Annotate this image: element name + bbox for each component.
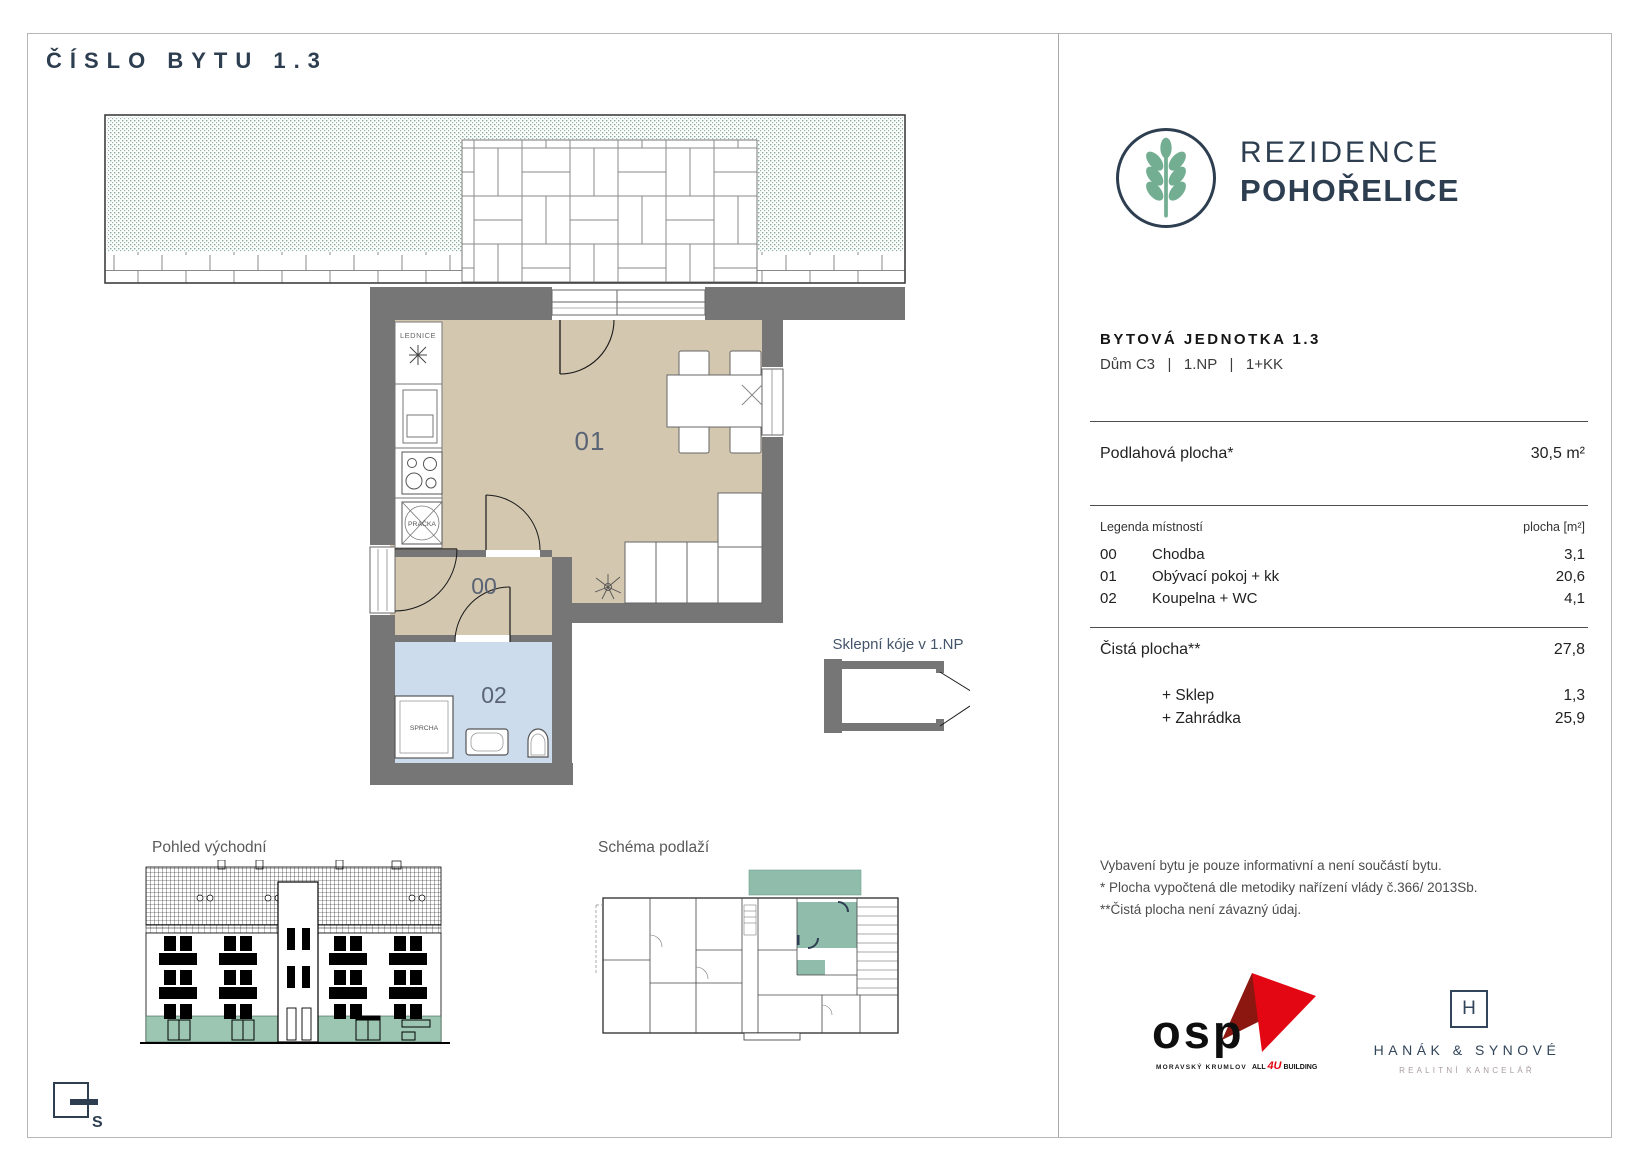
floor-area-value: 30,5 m² [1531, 445, 1585, 463]
extra-value: 25,9 [1555, 710, 1585, 728]
room-code: 00 [1100, 546, 1152, 563]
pane-divider [1058, 33, 1059, 1137]
cellar-box [824, 659, 970, 733]
osp-city: MORAVSKÝ KRUMLOV [1156, 1064, 1247, 1071]
extra-row: + Zahrádka 25,9 [1100, 710, 1585, 728]
page-title: ČÍSLO BYTU 1.3 [46, 48, 328, 74]
osp-tagline: ALL 4U BUILDING [1252, 1060, 1317, 1072]
osp-tag-all: ALL [1252, 1064, 1265, 1071]
shower-symbol: SPRCHA [395, 696, 453, 758]
brand-logo-circle [1116, 128, 1216, 228]
room-area: 4,1 [1564, 590, 1585, 607]
wheat-icon [1119, 131, 1213, 225]
hanak-logo: H HANÁK & SYNOVÉ REALITNÍ KANCELÁŘ [1372, 988, 1562, 1083]
legend-header-row: Legenda místností plocha [m²] [1100, 520, 1585, 534]
net-area-row: Čistá plocha** 27,8 [1100, 641, 1585, 659]
legend-title: Legenda místností [1100, 520, 1203, 534]
hanak-name: HANÁK & SYNOVÉ [1372, 1042, 1562, 1058]
schema-bottom-step [744, 1033, 800, 1040]
fridge-symbol [403, 390, 437, 443]
washer-label: PRAČKA [408, 519, 436, 528]
fridge-label: LEDNICE [400, 331, 436, 340]
room-name: Obývací pokoj + kk [1152, 568, 1556, 585]
net-area-value: 27,8 [1554, 641, 1585, 659]
shower-label: SPRCHA [410, 725, 439, 732]
stove-symbol [402, 452, 442, 494]
asterisk-icon [409, 345, 427, 365]
stair-tower [278, 882, 318, 1042]
osp-tag-building: BUILDING [1283, 1064, 1317, 1071]
schema-edge-mark [596, 905, 603, 975]
room-label-02: 02 [481, 682, 507, 708]
washer-symbol: PRAČKA [402, 502, 442, 544]
floor-area-label: Podlahová plocha* [1100, 445, 1233, 463]
extra-row: + Sklep 1,3 [1100, 687, 1585, 705]
room-area: 20,6 [1556, 568, 1585, 585]
table-row: 01 Obývací pokoj + kk 20,6 [1100, 568, 1585, 585]
osp-logo: osp MORAVSKÝ KRUMLOV ALL 4U BUILDING [1146, 962, 1336, 1080]
toilet-symbol [528, 729, 548, 757]
elevation-caption: Pohled východní [152, 839, 267, 857]
unit-heading: BYTOVÁ JEDNOTKA 1.3 [1100, 331, 1321, 348]
unit-subheading: Dům C3 | 1.NP | 1+KK [1100, 356, 1283, 373]
net-area-label: Čistá plocha** [1100, 641, 1201, 659]
extra-label: + Sklep [1100, 687, 1214, 705]
north-label: S [92, 1114, 103, 1131]
brand-line1: REZIDENCE [1240, 136, 1460, 170]
notes-block: Vybavení bytu je pouze informativní a ne… [1100, 855, 1477, 921]
elevation-drawing [138, 860, 453, 1050]
room-label-00: 00 [471, 573, 497, 599]
cellar-caption: Sklepní kóje v 1.NP [808, 636, 988, 653]
schema-terrace-highlight [749, 870, 861, 895]
room-name: Koupelna + WC [1152, 590, 1564, 607]
page: ČÍSLO BYTU 1.3 [0, 0, 1639, 1170]
sink-symbol [466, 729, 508, 755]
extra-value: 1,3 [1563, 687, 1585, 705]
north-indicator: S [50, 1075, 112, 1137]
room-code: 01 [1100, 568, 1152, 585]
hanak-subtitle: REALITNÍ KANCELÁŘ [1372, 1066, 1562, 1075]
table-row: 02 Koupelna + WC 4,1 [1100, 590, 1585, 607]
table-row: 00 Chodba 3,1 [1100, 546, 1585, 563]
osp-name: osp [1152, 1006, 1245, 1058]
room-name: Chodba [1152, 546, 1564, 563]
room-label-01: 01 [575, 426, 606, 456]
brand-name: REZIDENCE POHOŘELICE [1240, 136, 1460, 209]
legend-area-header: plocha [m²] [1523, 520, 1585, 534]
note-line: * Plocha vypočtená dle metodiky nařízení… [1100, 877, 1477, 899]
note-line: **Čistá plocha není závazný údaj. [1100, 899, 1477, 921]
rule-1 [1090, 421, 1588, 422]
rule-2 [1090, 505, 1588, 506]
room-area: 3,1 [1564, 546, 1585, 563]
note-line: Vybavení bytu je pouze informativní a ne… [1100, 855, 1477, 877]
rule-3 [1090, 627, 1588, 628]
osp-tag-4u: 4U [1267, 1060, 1281, 1072]
schema-drawing [592, 855, 907, 1050]
floorplan-drawing: LEDNICE PRAČKA [90, 100, 970, 800]
hanak-monogram: H [1450, 990, 1488, 1028]
room-code: 02 [1100, 590, 1152, 607]
brand-line2: POHOŘELICE [1240, 173, 1460, 209]
extra-label: + Zahrádka [1100, 710, 1241, 728]
right-wall-window [762, 369, 783, 435]
garden-area [105, 115, 905, 283]
floor-area-row: Podlahová plocha* 30,5 m² [1100, 445, 1585, 463]
